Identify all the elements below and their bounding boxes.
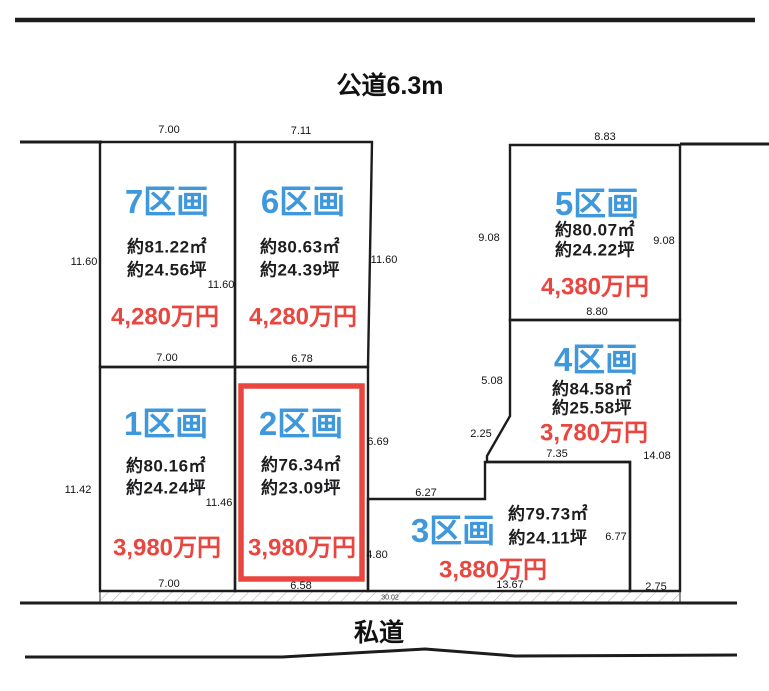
dim-frontage-total: 30.02 [381, 595, 399, 602]
private-road-lower-line [25, 649, 737, 657]
dim-plot1-left: 11.42 [65, 484, 92, 496]
plot-5-price: 4,380万円 [541, 267, 649, 302]
public-road-label: 公道6.3m [337, 66, 444, 102]
dim-plot5-left: 9.08 [478, 232, 499, 244]
dim-plot4-left: 5.08 [481, 375, 502, 387]
dim-plot6-bottom: 6.78 [291, 353, 312, 365]
plot-6-area-m2: 約80.63㎡ [260, 233, 340, 258]
plot-6-area-tsubo: 約24.39坪 [260, 256, 340, 281]
dim-plot6-right: 11.60 [371, 254, 398, 266]
dim-plot7-bottom: 7.00 [156, 352, 177, 364]
plot-2-area-m2: 約76.34㎡ [261, 451, 341, 476]
dim-plot3-bottom: 13.67 [496, 579, 524, 591]
dim-plot3-right-inner: 6.77 [605, 531, 626, 543]
dim-plot3-top: 6.27 [415, 487, 436, 499]
plot-2-label: 2区画 [259, 397, 343, 445]
dim-plot4-right: 14.08 [643, 450, 671, 462]
plot-4-price: 3,780万円 [540, 413, 648, 448]
dim-plot5-right: 9.08 [653, 235, 674, 247]
plot-6-price: 4,280万円 [249, 297, 357, 332]
plot-1-area-tsubo: 約24.24坪 [126, 474, 206, 499]
plot-5-area-tsubo: 約24.22坪 [555, 236, 635, 261]
plot-7-label: 7区画 [125, 175, 209, 223]
dim-plot7-top: 7.00 [158, 124, 179, 136]
dim-plot1-right-inner: 11.46 [206, 497, 233, 509]
dim-plot5-top: 8.83 [594, 131, 615, 143]
plot-1-price: 3,980万円 [113, 528, 221, 563]
dim-plot4-strip-bottom: 2.75 [645, 581, 666, 593]
dim-plot7-left: 11.60 [71, 256, 98, 268]
plot-1-label: 1区画 [124, 397, 208, 445]
dim-plot4-inner-bottom: 7.35 [546, 448, 567, 460]
plot-7-area-m2: 約81.22㎡ [127, 233, 207, 258]
dim-plot6-top: 7.11 [291, 125, 312, 137]
dim-plot5-bottom: 8.80 [586, 306, 607, 318]
plot-7-area-tsubo: 約24.56坪 [127, 256, 207, 281]
plot-3-label: 3区画 [411, 504, 495, 552]
land-plot-diagram: 公道6.3m 私道 7区画 約81.22㎡ 約24.56坪 4,280万円 6区… [0, 0, 769, 691]
plot-3-price: 3,880万円 [439, 550, 547, 585]
dim-plot2-right-lower: 4.80 [366, 549, 387, 561]
plot-2-price: 3,980万円 [248, 528, 356, 563]
dim-plot1-bottom: 7.00 [158, 578, 179, 590]
dim-plot4-diagonal: 2.25 [470, 428, 491, 440]
plot-2-area-tsubo: 約23.09坪 [261, 474, 341, 499]
dim-plot7-right-inner: 11.60 [208, 279, 235, 291]
plot-3-area-tsubo: 約24.11坪 [508, 524, 587, 549]
plot-6-label: 6区画 [261, 175, 345, 223]
plot-7-price: 4,280万円 [111, 297, 219, 332]
plot-3-area-m2: 約79.73㎡ [508, 500, 588, 525]
private-road-label: 私道 [354, 613, 404, 649]
dim-plot2-bottom: 6.58 [290, 580, 311, 592]
dim-plot2-right-upper: 6.69 [367, 436, 388, 448]
